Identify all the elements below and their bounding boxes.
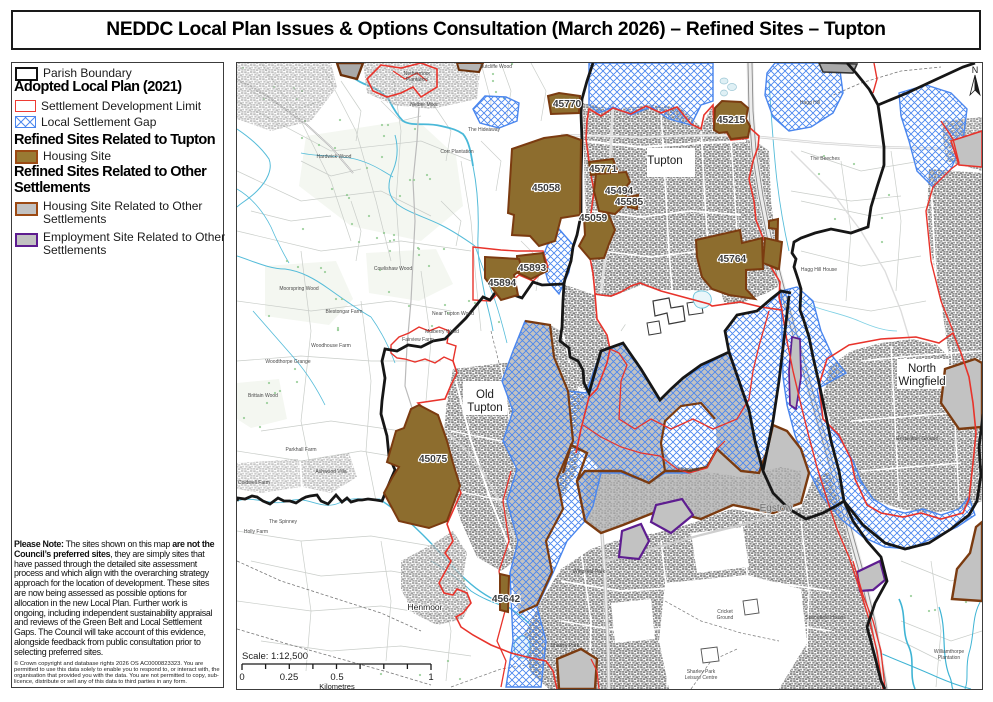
svg-text:45494: 45494 [605, 186, 634, 197]
svg-text:Egstow: Egstow [760, 503, 794, 514]
svg-text:The Hideaway: The Hideaway [468, 127, 500, 133]
svg-text:Hagg Hill House: Hagg Hill House [801, 267, 837, 273]
svg-text:Plantation: Plantation [938, 655, 960, 661]
svg-text:Corr Plantation: Corr Plantation [440, 149, 474, 155]
svg-text:Hagg Hill: Hagg Hill [800, 100, 820, 106]
svg-text:Woodhouse Farm: Woodhouse Farm [311, 343, 351, 349]
svg-text:Cowlishaw Wood: Cowlishaw Wood [374, 266, 412, 272]
svg-text:45894: 45894 [488, 278, 517, 289]
svg-text:Recreation Ground: Recreation Ground [896, 436, 938, 442]
svg-text:45058: 45058 [532, 183, 561, 194]
svg-text:Plantation: Plantation [406, 77, 428, 83]
svg-text:Leisure Centre: Leisure Centre [685, 675, 718, 681]
svg-text:Woodthorpe Grange: Woodthorpe Grange [265, 359, 310, 365]
svg-text:Coldwell Farm: Coldwell Farm [238, 480, 270, 486]
svg-text:Mulberry Wood: Mulberry Wood [425, 329, 459, 335]
svg-text:Sharley Park: Sharley Park [551, 643, 580, 649]
svg-text:Kilometres: Kilometres [319, 682, 355, 689]
svg-text:Nether Moor: Nether Moor [410, 102, 438, 108]
svg-text:N: N [972, 65, 979, 75]
svg-text:Ground: Ground [717, 615, 734, 621]
svg-text:Old: Old [476, 389, 494, 401]
svg-text:45764: 45764 [718, 254, 747, 265]
svg-text:Henmoor: Henmoor [408, 602, 443, 612]
svg-text:45585: 45585 [615, 197, 644, 208]
svg-text:Brittain Wood: Brittain Wood [248, 393, 278, 399]
svg-text:45075: 45075 [419, 454, 448, 465]
svg-text:Parkhall Farm: Parkhall Farm [285, 447, 316, 453]
svg-text:The Beeches: The Beeches [810, 156, 840, 162]
svg-text:0: 0 [239, 672, 244, 683]
svg-text:Tupton: Tupton [647, 155, 682, 167]
svg-text:0.25: 0.25 [280, 672, 299, 683]
svg-text:1: 1 [428, 672, 433, 683]
svg-text:Fairview Farm: Fairview Farm [402, 337, 434, 343]
svg-text:45642: 45642 [492, 594, 521, 605]
svg-text:45215: 45215 [717, 115, 746, 126]
svg-text:45059: 45059 [579, 213, 608, 224]
svg-text:North: North [908, 363, 936, 375]
svg-text:The Spinney: The Spinney [269, 519, 298, 525]
svg-text:45770: 45770 [553, 99, 582, 110]
svg-text:45893: 45893 [518, 263, 547, 274]
svg-text:Wingfield Park: Wingfield Park [573, 569, 606, 575]
svg-text:Near Tupton Wood: Near Tupton Wood [432, 311, 474, 317]
svg-text:Hardwick Wood: Hardwick Wood [317, 154, 352, 160]
svg-text:Ashwood Villa: Ashwood Villa [315, 469, 347, 475]
svg-text:Blestongar Farm: Blestongar Farm [326, 309, 363, 315]
svg-text:Sutcliffe Wood: Sutcliffe Wood [480, 64, 512, 70]
svg-text:45771: 45771 [589, 164, 618, 175]
svg-text:Tupton: Tupton [467, 402, 502, 414]
svg-text:Scale: 1:12,500: Scale: 1:12,500 [242, 651, 308, 662]
svg-text:Holly Farm: Holly Farm [244, 529, 268, 535]
svg-text:Wingfield: Wingfield [898, 376, 945, 388]
svg-text:Springfield House: Springfield House [805, 615, 845, 621]
svg-text:Holmgate: Holmgate [678, 467, 700, 473]
svg-text:Moorspring Wood: Moorspring Wood [279, 286, 319, 292]
